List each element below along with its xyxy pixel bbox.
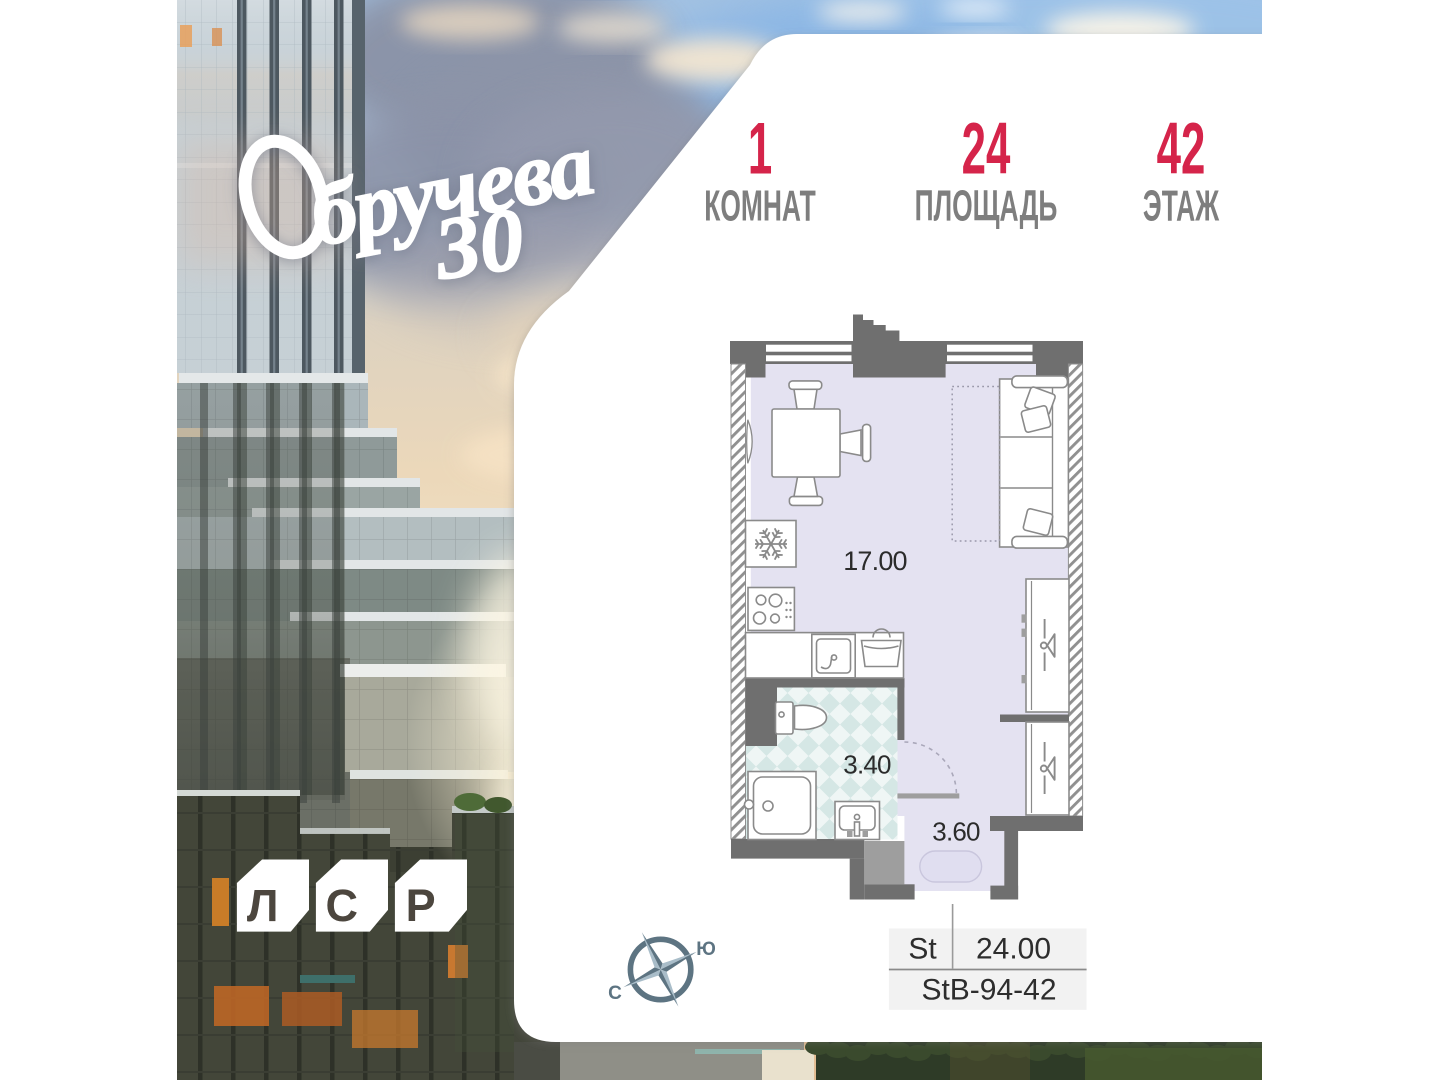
svg-text:Р: Р [406, 880, 436, 931]
svg-text:КОМНАТ: КОМНАТ [704, 181, 816, 231]
svg-text:3.40: 3.40 [843, 750, 891, 780]
svg-text:42: 42 [1157, 108, 1206, 189]
svg-text:St: St [908, 933, 937, 966]
svg-text:24: 24 [962, 108, 1011, 189]
svg-text:Л: Л [247, 880, 279, 931]
svg-text:ПЛОЩАДЬ: ПЛОЩАДЬ [915, 181, 1058, 231]
svg-text:С: С [325, 880, 358, 931]
svg-text:1: 1 [748, 108, 772, 189]
svg-text:С: С [608, 983, 622, 1004]
svg-text:30: 30 [428, 191, 530, 299]
svg-text:17.00: 17.00 [843, 546, 907, 576]
svg-text:Ю: Ю [696, 939, 716, 960]
svg-text:ЭТАЖ: ЭТАЖ [1143, 181, 1219, 231]
svg-text:3.60: 3.60 [932, 817, 980, 847]
svg-text:StB-94-42: StB-94-42 [921, 974, 1056, 1007]
svg-text:24.00: 24.00 [976, 933, 1051, 966]
